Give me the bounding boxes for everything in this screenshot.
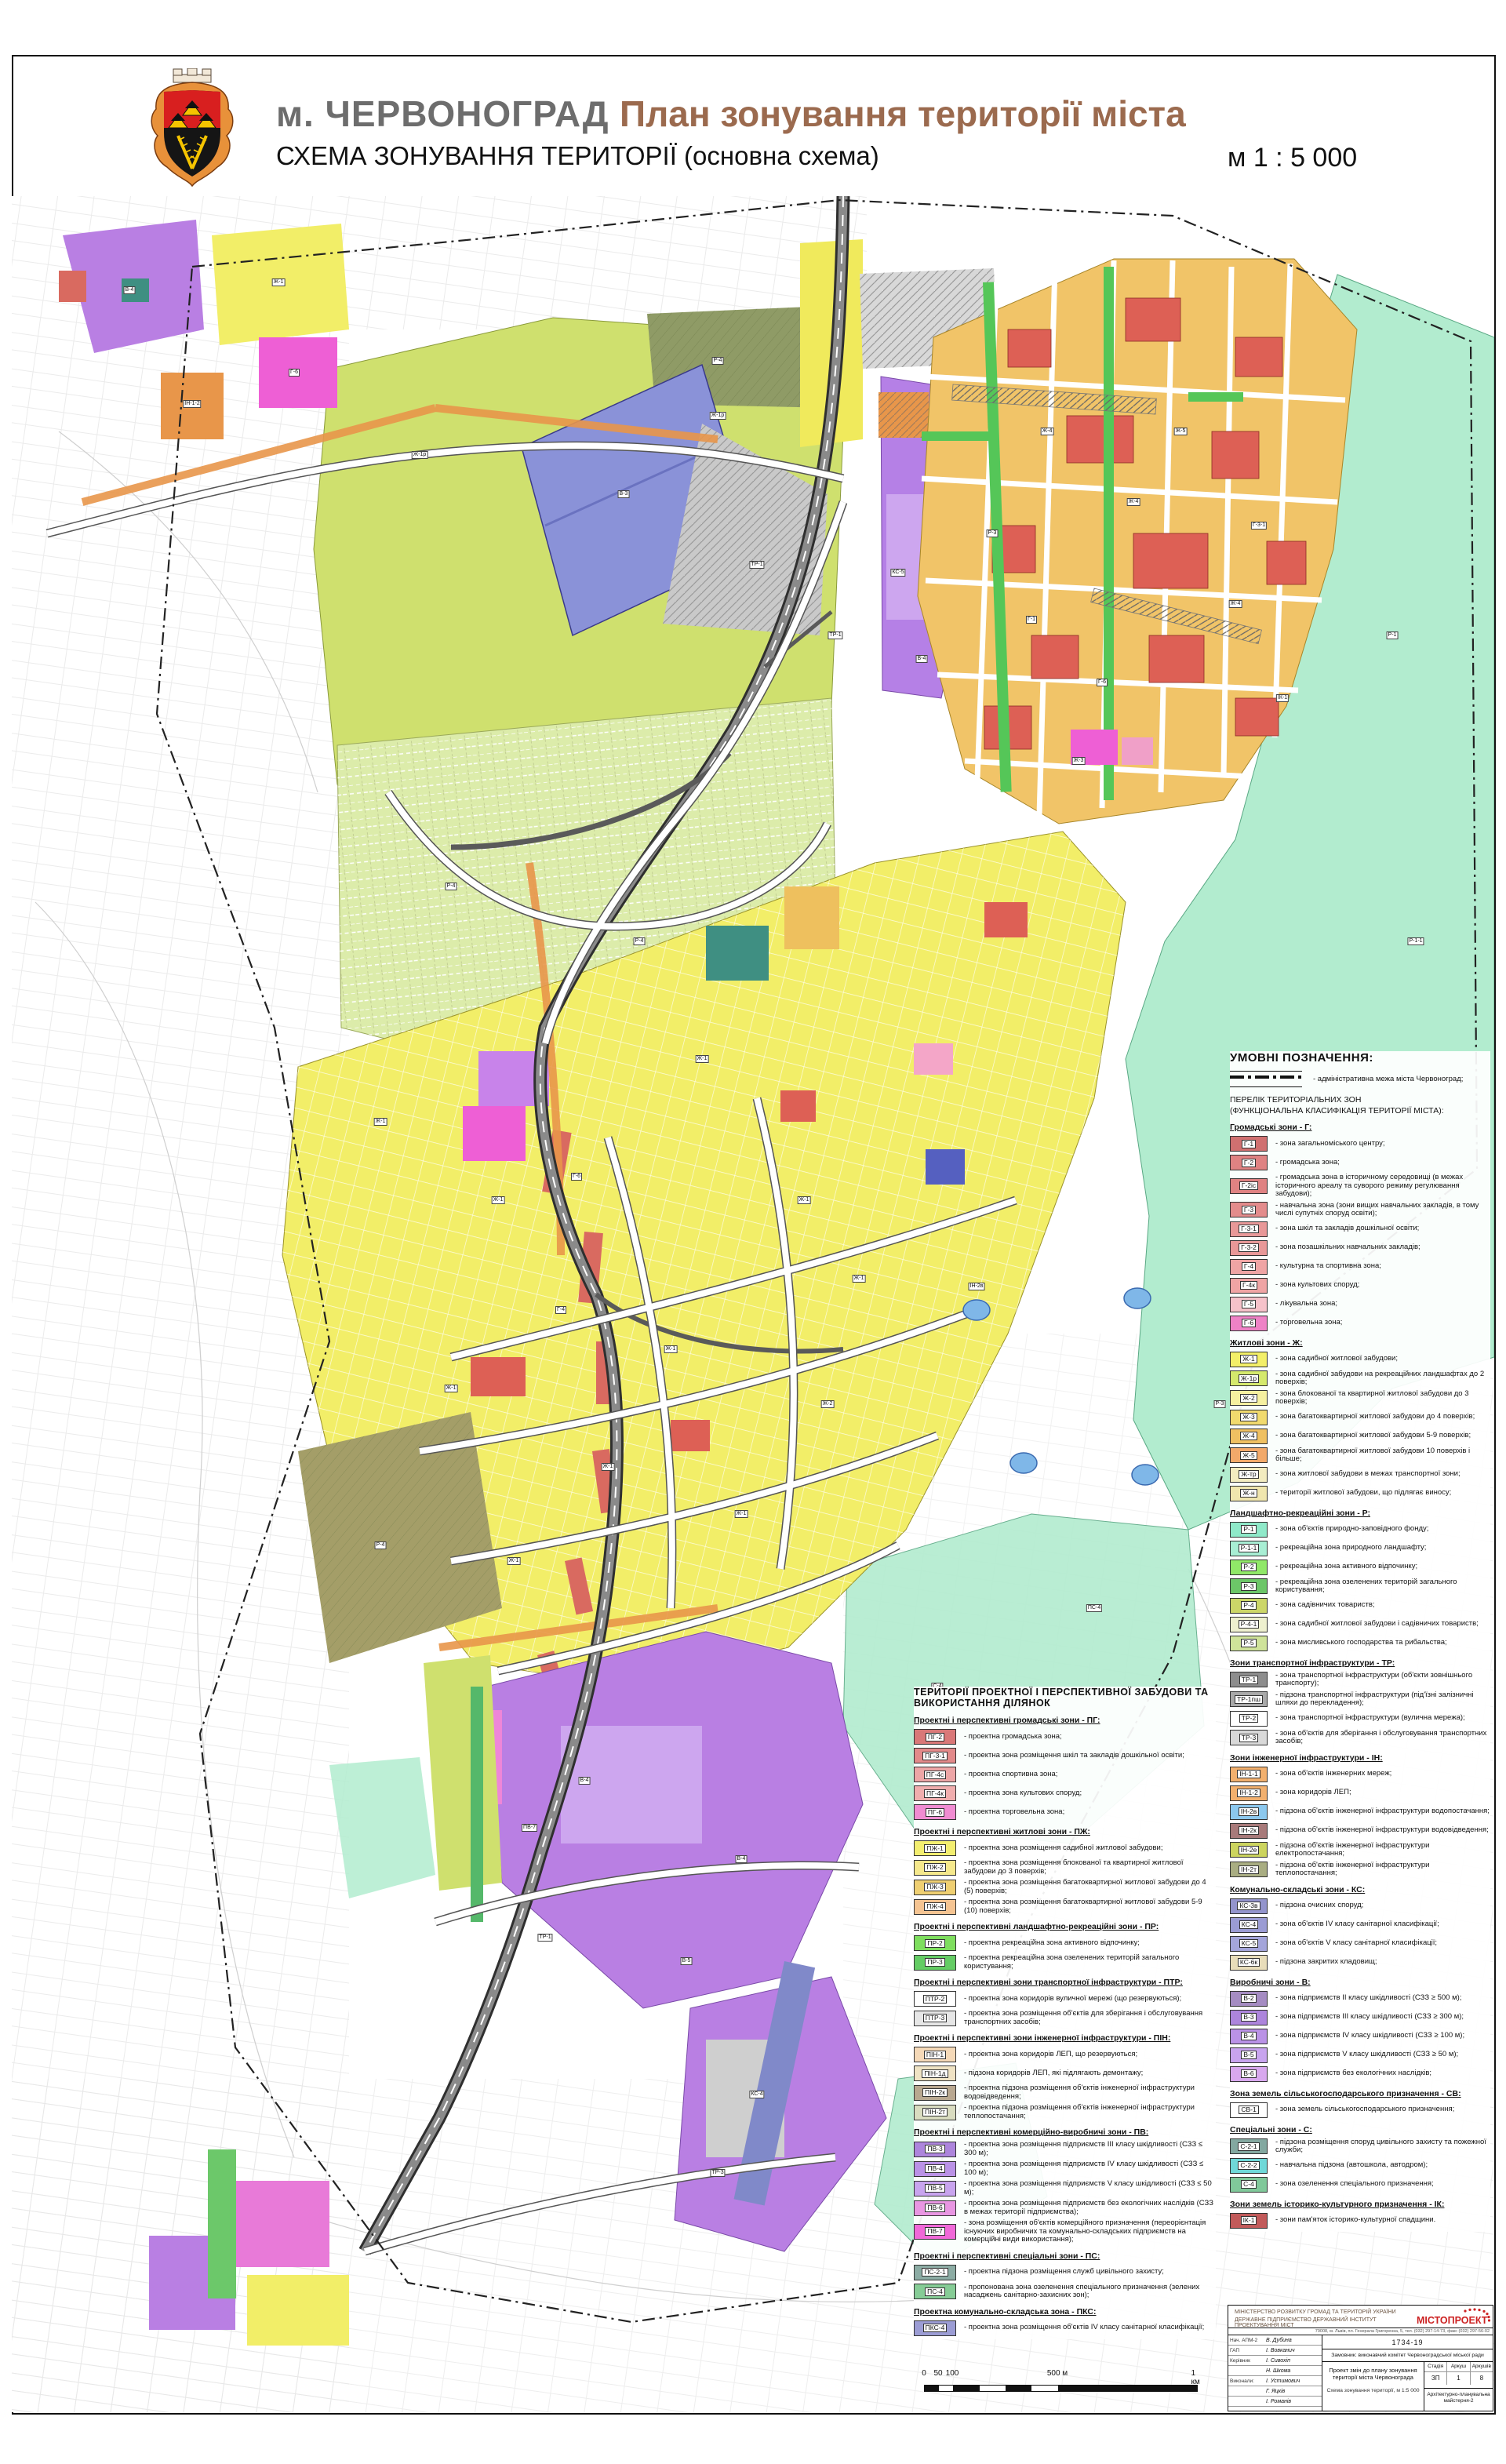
zone-description: - проектна зона розміщення об'єктів для … <box>964 2010 1216 2026</box>
legend-right-item-ІН-1-2: ІН-1-2- зона коридорів ЛЕП; <box>1230 1785 1490 1801</box>
swatch-КС-6к: КС-6к <box>1230 1955 1268 1971</box>
swatch-ПІН-1д: ПІН-1д <box>914 2065 956 2081</box>
zone-description: - проектна зона розміщення блокованої та… <box>964 1859 1216 1876</box>
swatch-КС-3в: КС-3в <box>1230 1898 1268 1914</box>
legend-right-item-Р-2: Р-2- рекреаційна зона активного відпочин… <box>1230 1560 1490 1575</box>
project-number: 1734-19 <box>1322 2335 1493 2349</box>
zone-code: Г-4 <box>1242 1262 1256 1271</box>
legend-right-item-СВ-1: СВ-1- зона земель сільськогосподарського… <box>1230 2102 1490 2118</box>
zone-code: Г-5 <box>1242 1300 1256 1308</box>
swatch-ІН-1-1: ІН-1-1 <box>1230 1767 1268 1782</box>
legend-right-item-ІН-2к: ІН-2к- підзона об'єктів інженерної інфра… <box>1230 1823 1490 1839</box>
legend-left-group-heading-2: Проектні і перспективні ландшафтно-рекре… <box>914 1922 1216 1931</box>
legend-left-group-heading-6: Проектні і перспективні спеціальні зони … <box>914 2251 1216 2261</box>
map-label-Ж-1: Ж-1 <box>602 1463 615 1471</box>
stage-value: 1 <box>1447 2372 1470 2385</box>
zone-code: С-2-2 <box>1238 2161 1259 2170</box>
zone-description: - проектна підзона розміщення об'єктів і… <box>964 2084 1216 2101</box>
zone-code: Ж-4 <box>1240 1432 1257 1440</box>
legend-left-item-ПС-4: ПС-4- пропонована зона озеленення спеціа… <box>914 2284 1216 2300</box>
legend-right-item-С-2-1: С-2-1- підзона розміщення споруд цивільн… <box>1230 2138 1490 2155</box>
legend-left-item-ПЖ-4: ПЖ-4- проектна зона розміщення багатоква… <box>914 1898 1216 1915</box>
zone-code: ІН-1-2 <box>1237 1789 1260 1797</box>
map-label-В-4: В-4 <box>579 1777 591 1785</box>
legend-right-item-Ж-3: Ж-3- зона багатоквартирної житлової забу… <box>1230 1410 1490 1425</box>
legend-left-item-ПГ-2: ПГ-2- проектна громадська зона; <box>914 1729 1216 1745</box>
legend-right-item-Г-3: Г-3- навчальна зона (зони вищих навчальн… <box>1230 1202 1490 1218</box>
legend-right-item-Ж-1: Ж-1- зона садибної житлової забудови; <box>1230 1352 1490 1367</box>
map-label-ІН-1-2: ІН-1-2 <box>183 400 201 408</box>
zone-code: В-6 <box>1241 2069 1256 2078</box>
zone-description: - зона підприємств II класу шкідливості … <box>1275 1994 1461 2003</box>
zone-code: ПІН-1 <box>924 2051 946 2059</box>
zone-description: - зона транспортної інфраструктури (вули… <box>1275 1714 1465 1723</box>
zone-description: - рекреаційна зона природного ландшафту; <box>1275 1544 1426 1552</box>
logo-text: МІСТОПРОЕКТ <box>1417 2315 1488 2326</box>
zone-code: ІН-2к <box>1239 1826 1259 1835</box>
scalebar-label-50: 50 <box>933 2369 942 2378</box>
zone-code: Р-4-1 <box>1239 1620 1260 1629</box>
zone-description: - проектна зона розміщення об'єктів IV к… <box>964 2324 1204 2332</box>
zone-code: ПС-2-1 <box>922 2268 948 2277</box>
zone-code: ПГ-4с <box>924 1771 947 1779</box>
legend-admin-boundary: - адміністративна межа міста Червоноград… <box>1230 1071 1490 1087</box>
swatch-ПВ-4: ПВ-4 <box>914 2161 956 2177</box>
zone-description: - проектна зона розміщення підприємств I… <box>964 2160 1216 2177</box>
swatch-ПГ-3-1: ПГ-3-1 <box>914 1748 956 1763</box>
legend-existing-zones: УМОВНІ ПОЗНАЧЕННЯ: - адміністративна меж… <box>1230 1051 1490 2232</box>
swatch-В-3: В-3 <box>1230 2010 1268 2025</box>
zone-description: - лікувальна зона; <box>1275 1300 1337 1308</box>
zone-code: В-4 <box>1241 2032 1256 2040</box>
swatch-Г-2іс: Г-2іс <box>1230 1178 1268 1194</box>
zone-description: - підзона об'єктів інженерної інфраструк… <box>1275 1807 1490 1816</box>
legend-right-item-ІК-1: ІК-1- зони пам'яток історико-культурної … <box>1230 2213 1490 2229</box>
legend-list-header2: (ФУНКЦІОНАЛЬНА КЛАСИФІКАЦІЯ ТЕРИТОРІЇ МІ… <box>1230 1106 1490 1116</box>
map-label-Ж-4: Ж-4 <box>1229 600 1242 608</box>
zone-description: - проектна підзона розміщення об'єктів і… <box>964 2104 1216 2120</box>
scalebar-label-100: 100 <box>946 2369 959 2378</box>
swatch-Ж-3: Ж-3 <box>1230 1410 1268 1425</box>
stage-table: СтадіяАркушАркушів ЗП18 <box>1424 2362 1493 2389</box>
map-label-Ж-1: Ж-1 <box>272 278 286 286</box>
swatch-С-4: С-4 <box>1230 2177 1268 2193</box>
object-title: Проект змін до плану зонування території… <box>1322 2362 1424 2411</box>
swatch-В-6: В-6 <box>1230 2066 1268 2082</box>
swatch-Р-1: Р-1 <box>1230 1522 1268 1538</box>
zone-description: - зона підприємств V класу шкідливості (… <box>1275 2051 1458 2059</box>
map-label-Р-3: Р-3 <box>1214 1400 1226 1408</box>
legend-right-item-КС-4: КС-4- зона об'єктів IV класу санітарної … <box>1230 1917 1490 1933</box>
zone-description: - зона позашкільних навчальних закладів; <box>1275 1243 1421 1252</box>
staff-row: Нач. АПМ-2В. Дубина <box>1228 2335 1322 2346</box>
legend-right-item-Ж-1р: Ж-1р- зона садибної забудови на рекреаці… <box>1230 1370 1490 1387</box>
legend-left-group-heading-1: Проектні і перспективні житлові зони - П… <box>914 1827 1216 1836</box>
legend-right-item-КС-3в: КС-3в- підзона очисних споруд; <box>1230 1898 1490 1914</box>
legend-left-item-ПГ-4с: ПГ-4с- проектна спортивна зона; <box>914 1767 1216 1782</box>
map-label-Р-1: Р-1 <box>1387 631 1399 639</box>
scalebar-label-1 км: 1 км <box>1191 2369 1202 2386</box>
zone-description: - зона шкіл та закладів дошкільної освіт… <box>1275 1225 1419 1233</box>
zone-description: - зона коридорів ЛЕП; <box>1275 1789 1351 1797</box>
zone-description: - навчальна підзона (автошкола, автодром… <box>1275 2161 1428 2170</box>
swatch-ТР-2: ТР-2 <box>1230 1711 1268 1727</box>
scale-bar: 050100500 м1 км <box>924 2369 1206 2400</box>
client-line: Замовник: виконавчий комітет Червоноград… <box>1322 2349 1493 2362</box>
zone-description: - проектна зона культових споруд; <box>964 1789 1082 1798</box>
zone-code: В-3 <box>1241 2013 1256 2022</box>
zone-code: Р-5 <box>1241 1639 1256 1647</box>
map-label-Г-6: Г-6 <box>1097 679 1108 686</box>
legend-right-item-Ж-тр: Ж-тр- зона житлової забудови в межах тра… <box>1230 1467 1490 1483</box>
swatch-ПТР-3: ПТР-3 <box>914 2011 956 2026</box>
swatch-В-2: В-2 <box>1230 1991 1268 2007</box>
swatch-ІН-1-2: ІН-1-2 <box>1230 1785 1268 1801</box>
zone-code: ПГ-4к <box>924 1789 946 1798</box>
map-label-Ж-5: Ж-5 <box>1174 428 1188 435</box>
zone-description: - навчальна зона (зони вищих навчальних … <box>1275 1202 1490 1218</box>
zone-code: Ж-2 <box>1240 1394 1257 1403</box>
zone-code: ПВ-5 <box>925 2184 944 2193</box>
zone-description: - зона садівничих товариств; <box>1275 1601 1375 1610</box>
zone-code: Г-4к <box>1240 1281 1257 1290</box>
swatch-ТР-3: ТР-3 <box>1230 1730 1268 1745</box>
legend-right-item-ТР-3: ТР-3- зона об'єктів для зберігання і обс… <box>1230 1730 1490 1746</box>
legend-right-item-ІН-2е: ІН-2е- підзона об'єктів інженерної інфра… <box>1230 1842 1490 1858</box>
swatch-ПЖ-2: ПЖ-2 <box>914 1860 956 1876</box>
legend-right-item-Р-3: Р-3- рекреаційна зона озеленених територ… <box>1230 1578 1490 1595</box>
legend-right-item-ІН-2т: ІН-2т- підзона об'єктів інженерної інфра… <box>1230 1862 1490 1878</box>
scalebar-segment <box>1031 2386 1058 2391</box>
swatch-Г-4: Г-4 <box>1230 1259 1268 1275</box>
legend-left-item-ПР-3: ПР-3- проектна рекреаційна зона озеленен… <box>914 1954 1216 1971</box>
page-subtitle: СХЕМА ЗОНУВАННЯ ТЕРИТОРІЇ (основна схема… <box>276 141 879 171</box>
zone-description: - проектна зона розміщення шкіл та закла… <box>964 1752 1184 1760</box>
staff-table: Нач. АПМ-2В. ДубинаГАПІ. ВовканичКерівни… <box>1228 2335 1322 2411</box>
zone-code: В-5 <box>1241 2051 1256 2059</box>
legend-left-item-ПВ-6: ПВ-6- проектна зона розміщення підприємс… <box>914 2200 1216 2216</box>
zone-description: - підзона об'єктів інженерної інфраструк… <box>1275 1862 1490 1878</box>
map-label-Р-4: Р-4 <box>375 1541 387 1549</box>
swatch-Г-1: Г-1 <box>1230 1136 1268 1152</box>
zone-description: - проектна зона розміщення підприємств V… <box>964 2180 1216 2196</box>
zone-code: ТР-3 <box>1239 1734 1258 1742</box>
map-label-Ж-1: Ж-1 <box>696 1055 709 1063</box>
zone-description: - проектна рекреаційна зона активного ві… <box>964 1939 1140 1948</box>
zone-code: ІН-2в <box>1239 1807 1260 1816</box>
zone-description: - підзона об'єктів інженерної інфраструк… <box>1275 1826 1489 1835</box>
zone-code: ПТР-2 <box>923 1995 948 2004</box>
swatch-Р-3: Р-3 <box>1230 1578 1268 1594</box>
staff-row: Н. Шкома <box>1228 2366 1322 2376</box>
map-label-В-4: В-4 <box>736 1855 748 1863</box>
swatch-ІН-2т: ІН-2т <box>1230 1862 1268 1877</box>
swatch-Ж-н: Ж-н <box>1230 1486 1268 1501</box>
legend-left-item-ПР-2: ПР-2- проектна рекреаційна зона активног… <box>914 1935 1216 1951</box>
legend-right-item-Г-3-2: Г-3-2- зона позашкільних навчальних закл… <box>1230 1240 1490 1256</box>
swatch-Ж-1р: Ж-1р <box>1230 1370 1268 1386</box>
map-label-Ж-2: Ж-2 <box>821 1400 835 1408</box>
staff-row: І. Романів <box>1228 2397 1322 2407</box>
zone-description: - території житлової забудови, що підляг… <box>1275 1489 1451 1498</box>
legend-left-item-ПКС-4: ПКС-4- проектна зона розміщення об'єктів… <box>914 2320 1216 2336</box>
swatch-Ж-2: Ж-2 <box>1230 1390 1268 1406</box>
stage-header: Аркушів <box>1471 2362 1493 2371</box>
staff-name: Н. Шкома <box>1266 2368 1290 2374</box>
zone-description: - рекреаційна зона озеленених територій … <box>1275 1578 1490 1595</box>
zone-code: ПГ-3-1 <box>922 1752 948 1760</box>
zone-code: ПВ-3 <box>925 2145 944 2153</box>
crown-icon <box>173 68 211 82</box>
scalebar-segment <box>925 2386 939 2391</box>
zone-code: Г-2іс <box>1239 1181 1258 1190</box>
page-title-plan: План зонування території міста <box>620 93 1186 135</box>
staff-name: І. Романів <box>1266 2399 1291 2404</box>
legend-left-item-ПЖ-3: ПЖ-3- проектна зона розміщення багатоква… <box>914 1879 1216 1895</box>
legend-left-item-ПВ-3: ПВ-3- проектна зона розміщення підприємс… <box>914 2141 1216 2157</box>
swatch-ПГ-4с: ПГ-4с <box>914 1767 956 1782</box>
swatch-ПКС-4: ПКС-4 <box>914 2320 956 2336</box>
staff-role: Керівник <box>1228 2358 1266 2364</box>
zone-code: ТР-1 <box>1239 1676 1258 1684</box>
institute-address: 79008, м. Львів, пл. Генерала Григоренка… <box>1228 2328 1493 2335</box>
swatch-Г-4к: Г-4к <box>1230 1278 1268 1294</box>
zone-description: - проектна зона коридорів ЛЕП, що резерв… <box>964 2051 1137 2059</box>
legend-left-item-ПІН-2к: ПІН-2к- проектна підзона розміщення об'є… <box>914 2084 1216 2101</box>
swatch-ПТР-2: ПТР-2 <box>914 1991 956 2007</box>
zone-code: ПІН-1д <box>922 2069 948 2078</box>
scalebar-segment <box>1058 2386 1197 2391</box>
zone-code: ПР-3 <box>925 1958 944 1967</box>
zone-description: - підзона транспортної інфраструктури (п… <box>1275 1691 1490 1708</box>
zone-description: - зона багатоквартирної житлової забудов… <box>1275 1432 1471 1440</box>
staff-role: ГАП <box>1228 2348 1266 2353</box>
swatch-Р-4-1: Р-4-1 <box>1230 1617 1268 1632</box>
zone-code: Г-2 <box>1242 1159 1256 1167</box>
swatch-Р-1-1: Р-1-1 <box>1230 1541 1268 1556</box>
swatch-ПЖ-3: ПЖ-3 <box>914 1880 956 1895</box>
legend-left-item-ПЖ-1: ПЖ-1- проектна зона розміщення садибної … <box>914 1840 1216 1856</box>
swatch-Р-4: Р-4 <box>1230 1598 1268 1614</box>
swatch-ІК-1: ІК-1 <box>1230 2213 1268 2229</box>
map-label-ТР-3: ТР-3 <box>710 2169 725 2177</box>
zone-description: - зона садибної житлової забудови; <box>1275 1355 1398 1363</box>
map-label-ПВ-7: ПВ-7 <box>522 1824 537 1832</box>
swatch-ІН-2е: ІН-2е <box>1230 1842 1268 1858</box>
swatch-С-2-2: С-2-2 <box>1230 2158 1268 2174</box>
legend-left-item-ПВ-7: ПВ-7- зона розміщення об'єктів комерційн… <box>914 2219 1216 2244</box>
legend-left-item-ПГ-3-1: ПГ-3-1- проектна зона розміщення шкіл та… <box>914 1748 1216 1763</box>
zone-description: - торговельна зона; <box>1275 1319 1342 1327</box>
swatch-Ж-4: Ж-4 <box>1230 1429 1268 1444</box>
zone-code: Р-4 <box>1241 1601 1256 1610</box>
map-label-В-4: В-4 <box>916 655 928 663</box>
legend-right-item-ТР-1: ТР-1- зона транспортної інфраструктури (… <box>1230 1672 1490 1688</box>
zone-description: - проектна зона коридорів вуличної мереж… <box>964 1995 1181 2004</box>
rule <box>1230 1086 1302 1087</box>
swatch-ПЖ-1: ПЖ-1 <box>914 1840 956 1856</box>
zone-code: С-2-1 <box>1238 2142 1259 2151</box>
swatch-ПВ-7: ПВ-7 <box>914 2224 956 2240</box>
map-label-ТР-1: ТР-1 <box>537 1934 552 1942</box>
legend-left-item-ПВ-5: ПВ-5- проектна зона розміщення підприємс… <box>914 2180 1216 2196</box>
swatch-ПВ-3: ПВ-3 <box>914 2142 956 2157</box>
staff-role: Нач. АПМ-2 <box>1228 2338 1266 2343</box>
zone-description: - громадська зона в історичному середови… <box>1275 1174 1490 1199</box>
zone-description: - зона об'єктів інженерних мереж; <box>1275 1770 1391 1778</box>
map-label-Ж-1: Ж-1 <box>735 1510 748 1518</box>
zone-code: СВ-1 <box>1239 2106 1258 2114</box>
zone-code: ІН-2е <box>1239 1846 1260 1854</box>
zone-code: С-4 <box>1241 2180 1257 2189</box>
staff-name: В. Дубина <box>1266 2338 1292 2343</box>
zone-description: - громадська зона; <box>1275 1159 1340 1167</box>
swatch-ПС-4: ПС-4 <box>914 2284 956 2299</box>
map-label-Ж-1: Ж-1 <box>853 1275 866 1283</box>
zone-code: ІН-1-1 <box>1237 1770 1260 1778</box>
legend-right-group-heading-1: Житлові зони - Ж: <box>1230 1338 1490 1348</box>
zone-description: - рекреаційна зона активного відпочинку; <box>1275 1563 1417 1571</box>
swatch-ПР-3: ПР-3 <box>914 1955 956 1971</box>
zone-description: - проектна зона розміщення садибної житл… <box>964 1844 1163 1853</box>
zone-code: Г-3-1 <box>1239 1225 1259 1233</box>
zone-description: - проектна підзона розміщення служб циві… <box>964 2268 1164 2277</box>
zone-code: Г-6 <box>1242 1319 1256 1327</box>
zone-code: Ж-тр <box>1239 1470 1258 1479</box>
legend-right-group-heading-8: Спеціальні зони - С: <box>1230 2125 1490 2135</box>
swatch-Р-2: Р-2 <box>1230 1560 1268 1575</box>
zone-description: - проектна торговельна зона; <box>964 1808 1064 1817</box>
staff-name: І. Вовканич <box>1266 2348 1295 2353</box>
zone-code: Ж-3 <box>1240 1413 1257 1421</box>
map-label-В-5: В-5 <box>681 1957 693 1965</box>
legend-right-item-Ж-5: Ж-5- зона багатоквартирної житлової забу… <box>1230 1447 1490 1464</box>
map-label-ТР-1: ТР-1 <box>828 631 842 639</box>
swatch-ПІН-2т: ПІН-2т <box>914 2105 956 2120</box>
zone-code: ПІН-2т <box>922 2108 948 2116</box>
map-label-Р-4: Р-4 <box>446 883 457 890</box>
map-label-ІН-2в: ІН-2в <box>969 1283 985 1290</box>
legend-title: УМОВНІ ПОЗНАЧЕННЯ: <box>1230 1051 1490 1065</box>
legend-left-group-heading-0: Проектні і перспективні громадські зони … <box>914 1716 1216 1725</box>
legend-left-item-ПГ-4к: ПГ-4к- проектна зона культових споруд; <box>914 1785 1216 1801</box>
legend-right-item-Г-5: Г-5- лікувальна зона; <box>1230 1297 1490 1312</box>
zone-description: - зона культових споруд; <box>1275 1281 1359 1290</box>
map-label-Р-4: Р-4 <box>634 937 646 945</box>
swatch-ПР-2: ПР-2 <box>914 1935 956 1951</box>
map-label-Ж-4: Ж-4 <box>1127 498 1140 506</box>
swatch-Г-3: Г-3 <box>1230 1202 1268 1217</box>
legend-right-item-Р-1-1: Р-1-1- рекреаційна зона природного ландш… <box>1230 1541 1490 1556</box>
zone-code: В-2 <box>1241 1994 1256 2003</box>
map-label-Ж-1: Ж-1 <box>507 1557 521 1565</box>
legend-right-item-ІН-2в: ІН-2в- підзона об'єктів інженерної інфра… <box>1230 1804 1490 1820</box>
swatch-ТР-1: ТР-1 <box>1230 1672 1268 1687</box>
map-label-ПС-4: ПС-4 <box>1086 1604 1102 1612</box>
swatch-ПГ-4к: ПГ-4к <box>914 1785 956 1801</box>
zone-code: ТР-1пш <box>1235 1695 1263 1704</box>
legend-right-item-С-4: С-4- зона озеленення спеціального призна… <box>1230 2177 1490 2193</box>
zone-description: - зона розміщення об'єктів комерційного … <box>964 2219 1216 2244</box>
zone-description: - зона транспортної інфраструктури (об'є… <box>1275 1672 1490 1688</box>
zone-description: - зона об'єктів V класу санітарної класи… <box>1275 1939 1437 1948</box>
map-label-Ж-1: Ж-1 <box>492 1196 505 1204</box>
map-label-Г-1: Г-1 <box>1026 616 1037 624</box>
legend-right-item-ІН-1-1: ІН-1-1- зона об'єктів інженерних мереж; <box>1230 1767 1490 1782</box>
object-line1: Проект змін до плану зонування <box>1322 2367 1424 2374</box>
ministry-line2: ДЕРЖАВНЕ ПІДПРИЄМСТВО ДЕРЖАВНИЙ ІНСТИТУТ… <box>1235 2317 1415 2328</box>
swatch-Ж-тр: Ж-тр <box>1230 1467 1268 1483</box>
zone-description: - зона об'єктів для зберігання і обслуго… <box>1275 1730 1490 1746</box>
zone-description: - зона загальноміського центру; <box>1275 1140 1385 1148</box>
department-label: Архітектурно-планувальна майстерня-2 <box>1424 2389 1493 2411</box>
legend-right-group-heading-4: Зони інженерної інфраструктури - ІН: <box>1230 1753 1490 1763</box>
legend-right-item-Г-1: Г-1- зона загальноміського центру; <box>1230 1136 1490 1152</box>
swatch-Г-3-2: Г-3-2 <box>1230 1240 1268 1256</box>
zone-description: - проектна зона розміщення багатоквартир… <box>964 1879 1216 1895</box>
swatch-Г-2: Г-2 <box>1230 1155 1268 1170</box>
swatch-ТР-1пш: ТР-1пш <box>1230 1691 1268 1707</box>
zone-description: - зона мисливського господарства та риба… <box>1275 1639 1447 1647</box>
map-label-Г-3-1: Г-3-1 <box>1251 522 1267 530</box>
stage-value: 8 <box>1471 2372 1493 2385</box>
legend-right-item-КС-5: КС-5- зона об'єктів V класу санітарної к… <box>1230 1936 1490 1952</box>
legend-right-group-heading-3: Зони транспортної інфраструктури - ТР: <box>1230 1658 1490 1668</box>
swatch-Ж-5: Ж-5 <box>1230 1447 1268 1463</box>
zone-description: - зона садибної забудови на рекреаційних… <box>1275 1370 1490 1387</box>
legend-right-item-Ж-2: Ж-2- зона блокованої та квартирної житло… <box>1230 1390 1490 1407</box>
zone-code: Ж-н <box>1240 1489 1257 1498</box>
swatch-ПС-2-1: ПС-2-1 <box>914 2265 956 2280</box>
scalebar-label-500 м: 500 м <box>1047 2369 1068 2378</box>
zone-code: Ж-5 <box>1240 1451 1257 1460</box>
legend-right-group-heading-5: Комунально-складські зони - КС: <box>1230 1885 1490 1894</box>
swatch-ПІН-1: ПІН-1 <box>914 2047 956 2062</box>
legend-right-item-ТР-2: ТР-2- зона транспортної інфраструктури (… <box>1230 1711 1490 1727</box>
staff-row: КерівникІ. Сивохіп <box>1228 2356 1322 2366</box>
doc-title: Схема зонування території, м 1:5 000 <box>1322 2387 1424 2394</box>
scalebar-label-0: 0 <box>922 2369 926 2378</box>
zone-description: - зона багатоквартирної житлової забудов… <box>1275 1447 1490 1464</box>
swatch-Г-3-1: Г-3-1 <box>1230 1221 1268 1237</box>
legend-right-group-heading-0: Громадські зони - Г: <box>1230 1123 1490 1132</box>
legend-right-item-В-5: В-5- зона підприємств V класу шкідливост… <box>1230 2047 1490 2063</box>
zone-code: ПЖ-3 <box>924 1883 946 1891</box>
legend-left-item-ПТР-2: ПТР-2- проектна зона коридорів вуличної … <box>914 1991 1216 2007</box>
legend-right-item-Р-1: Р-1- зона об'єктів природно-заповідного … <box>1230 1522 1490 1538</box>
map-label-КС-4: КС-4 <box>749 2091 764 2098</box>
legend-right-item-В-3: В-3- зона підприємств III класу шкідливо… <box>1230 2010 1490 2025</box>
staff-role: Виконали: <box>1228 2378 1266 2384</box>
swatch-Г-6: Г-6 <box>1230 1316 1268 1331</box>
legend-right-item-Г-4к: Г-4к- зона культових споруд; <box>1230 1278 1490 1294</box>
map-label-Ж-4: Ж-4 <box>1041 428 1054 435</box>
legend-right-item-С-2-2: С-2-2- навчальна підзона (автошкола, авт… <box>1230 2158 1490 2174</box>
swatch-С-2-1: С-2-1 <box>1230 2138 1268 2154</box>
legend-right-group-heading-7: Зона земель сільськогосподарського призн… <box>1230 2089 1490 2098</box>
zone-code: ПГ-2 <box>926 1733 944 1742</box>
zone-code: Г-3 <box>1242 1206 1256 1214</box>
map-label-Г-6: Г-6 <box>571 1173 582 1181</box>
zone-description: - зона земель сільськогосподарського при… <box>1275 2106 1454 2114</box>
zone-code: КС-6к <box>1238 1958 1260 1967</box>
swatch-СВ-1: СВ-1 <box>1230 2102 1268 2118</box>
legend-right-item-Г-4: Г-4- культурна та спортивна зона; <box>1230 1259 1490 1275</box>
swatch-ПГ-6: ПГ-6 <box>914 1804 956 1820</box>
legend-right-group-heading-9: Зони земель історико-культурного признач… <box>1230 2200 1490 2209</box>
zone-code: ПКС-4 <box>923 2324 948 2332</box>
legend-right-item-Г-6: Г-6- торговельна зона; <box>1230 1316 1490 1331</box>
